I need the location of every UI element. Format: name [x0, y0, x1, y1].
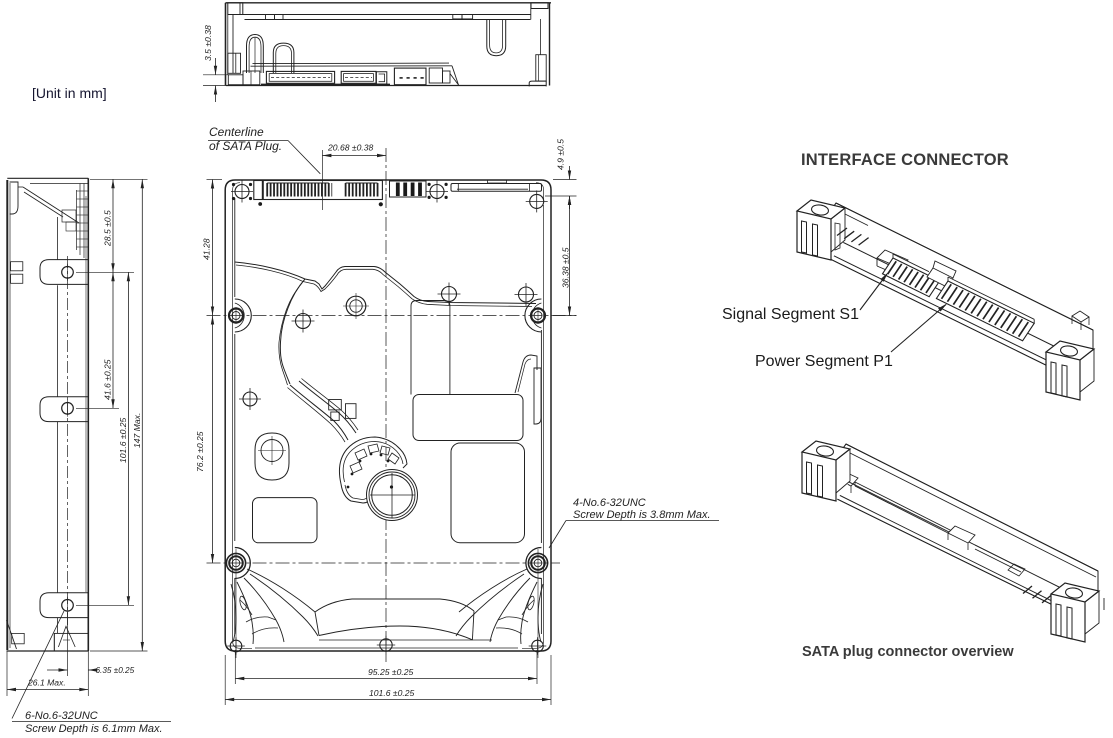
svg-text:3.5 ±0.38: 3.5 ±0.38 — [203, 25, 213, 61]
svg-text:Screw Depth is 6.1mm Max.: Screw Depth is 6.1mm Max. — [25, 723, 163, 735]
svg-text:Signal Segment S1: Signal Segment S1 — [722, 306, 859, 323]
svg-text:76.2 ±0.25: 76.2 ±0.25 — [195, 431, 205, 472]
svg-text:Centerline: Centerline — [209, 125, 264, 139]
svg-text:4-No.6-32UNC: 4-No.6-32UNC — [573, 497, 646, 509]
svg-text:20.68 ±0.38: 20.68 ±0.38 — [327, 143, 374, 153]
svg-text:SATA plug connector overview: SATA plug connector overview — [802, 644, 1014, 660]
svg-text:6.35 ±0.25: 6.35 ±0.25 — [96, 666, 135, 675]
svg-text:101.6 ±0.25: 101.6 ±0.25 — [369, 688, 415, 698]
svg-text:of SATA Plug.: of SATA Plug. — [209, 139, 282, 153]
svg-text:36.38 ±0.5: 36.38 ±0.5 — [561, 247, 571, 288]
svg-text:147 Max.: 147 Max. — [132, 413, 142, 448]
svg-text:101.6 ±0.25: 101.6 ±0.25 — [118, 417, 128, 463]
svg-text:6-No.6-32UNC: 6-No.6-32UNC — [25, 710, 98, 722]
svg-text:28.5 ±0.5: 28.5 ±0.5 — [103, 210, 113, 247]
svg-text:95.25 ±0.25: 95.25 ±0.25 — [368, 667, 414, 677]
svg-text:Power Segment P1: Power Segment P1 — [755, 353, 893, 370]
svg-text:[Unit in mm]: [Unit in mm] — [32, 85, 107, 101]
svg-text:4.9 ±0.5: 4.9 ±0.5 — [556, 139, 566, 170]
svg-text:Screw Depth is 3.8mm Max.: Screw Depth is 3.8mm Max. — [573, 509, 711, 521]
svg-text:41.6 ±0.25: 41.6 ±0.25 — [103, 359, 113, 400]
svg-text:INTERFACE CONNECTOR: INTERFACE CONNECTOR — [801, 151, 1009, 169]
svg-text:41.28: 41.28 — [202, 238, 212, 260]
svg-text:26.1 Max.: 26.1 Max. — [27, 678, 66, 688]
